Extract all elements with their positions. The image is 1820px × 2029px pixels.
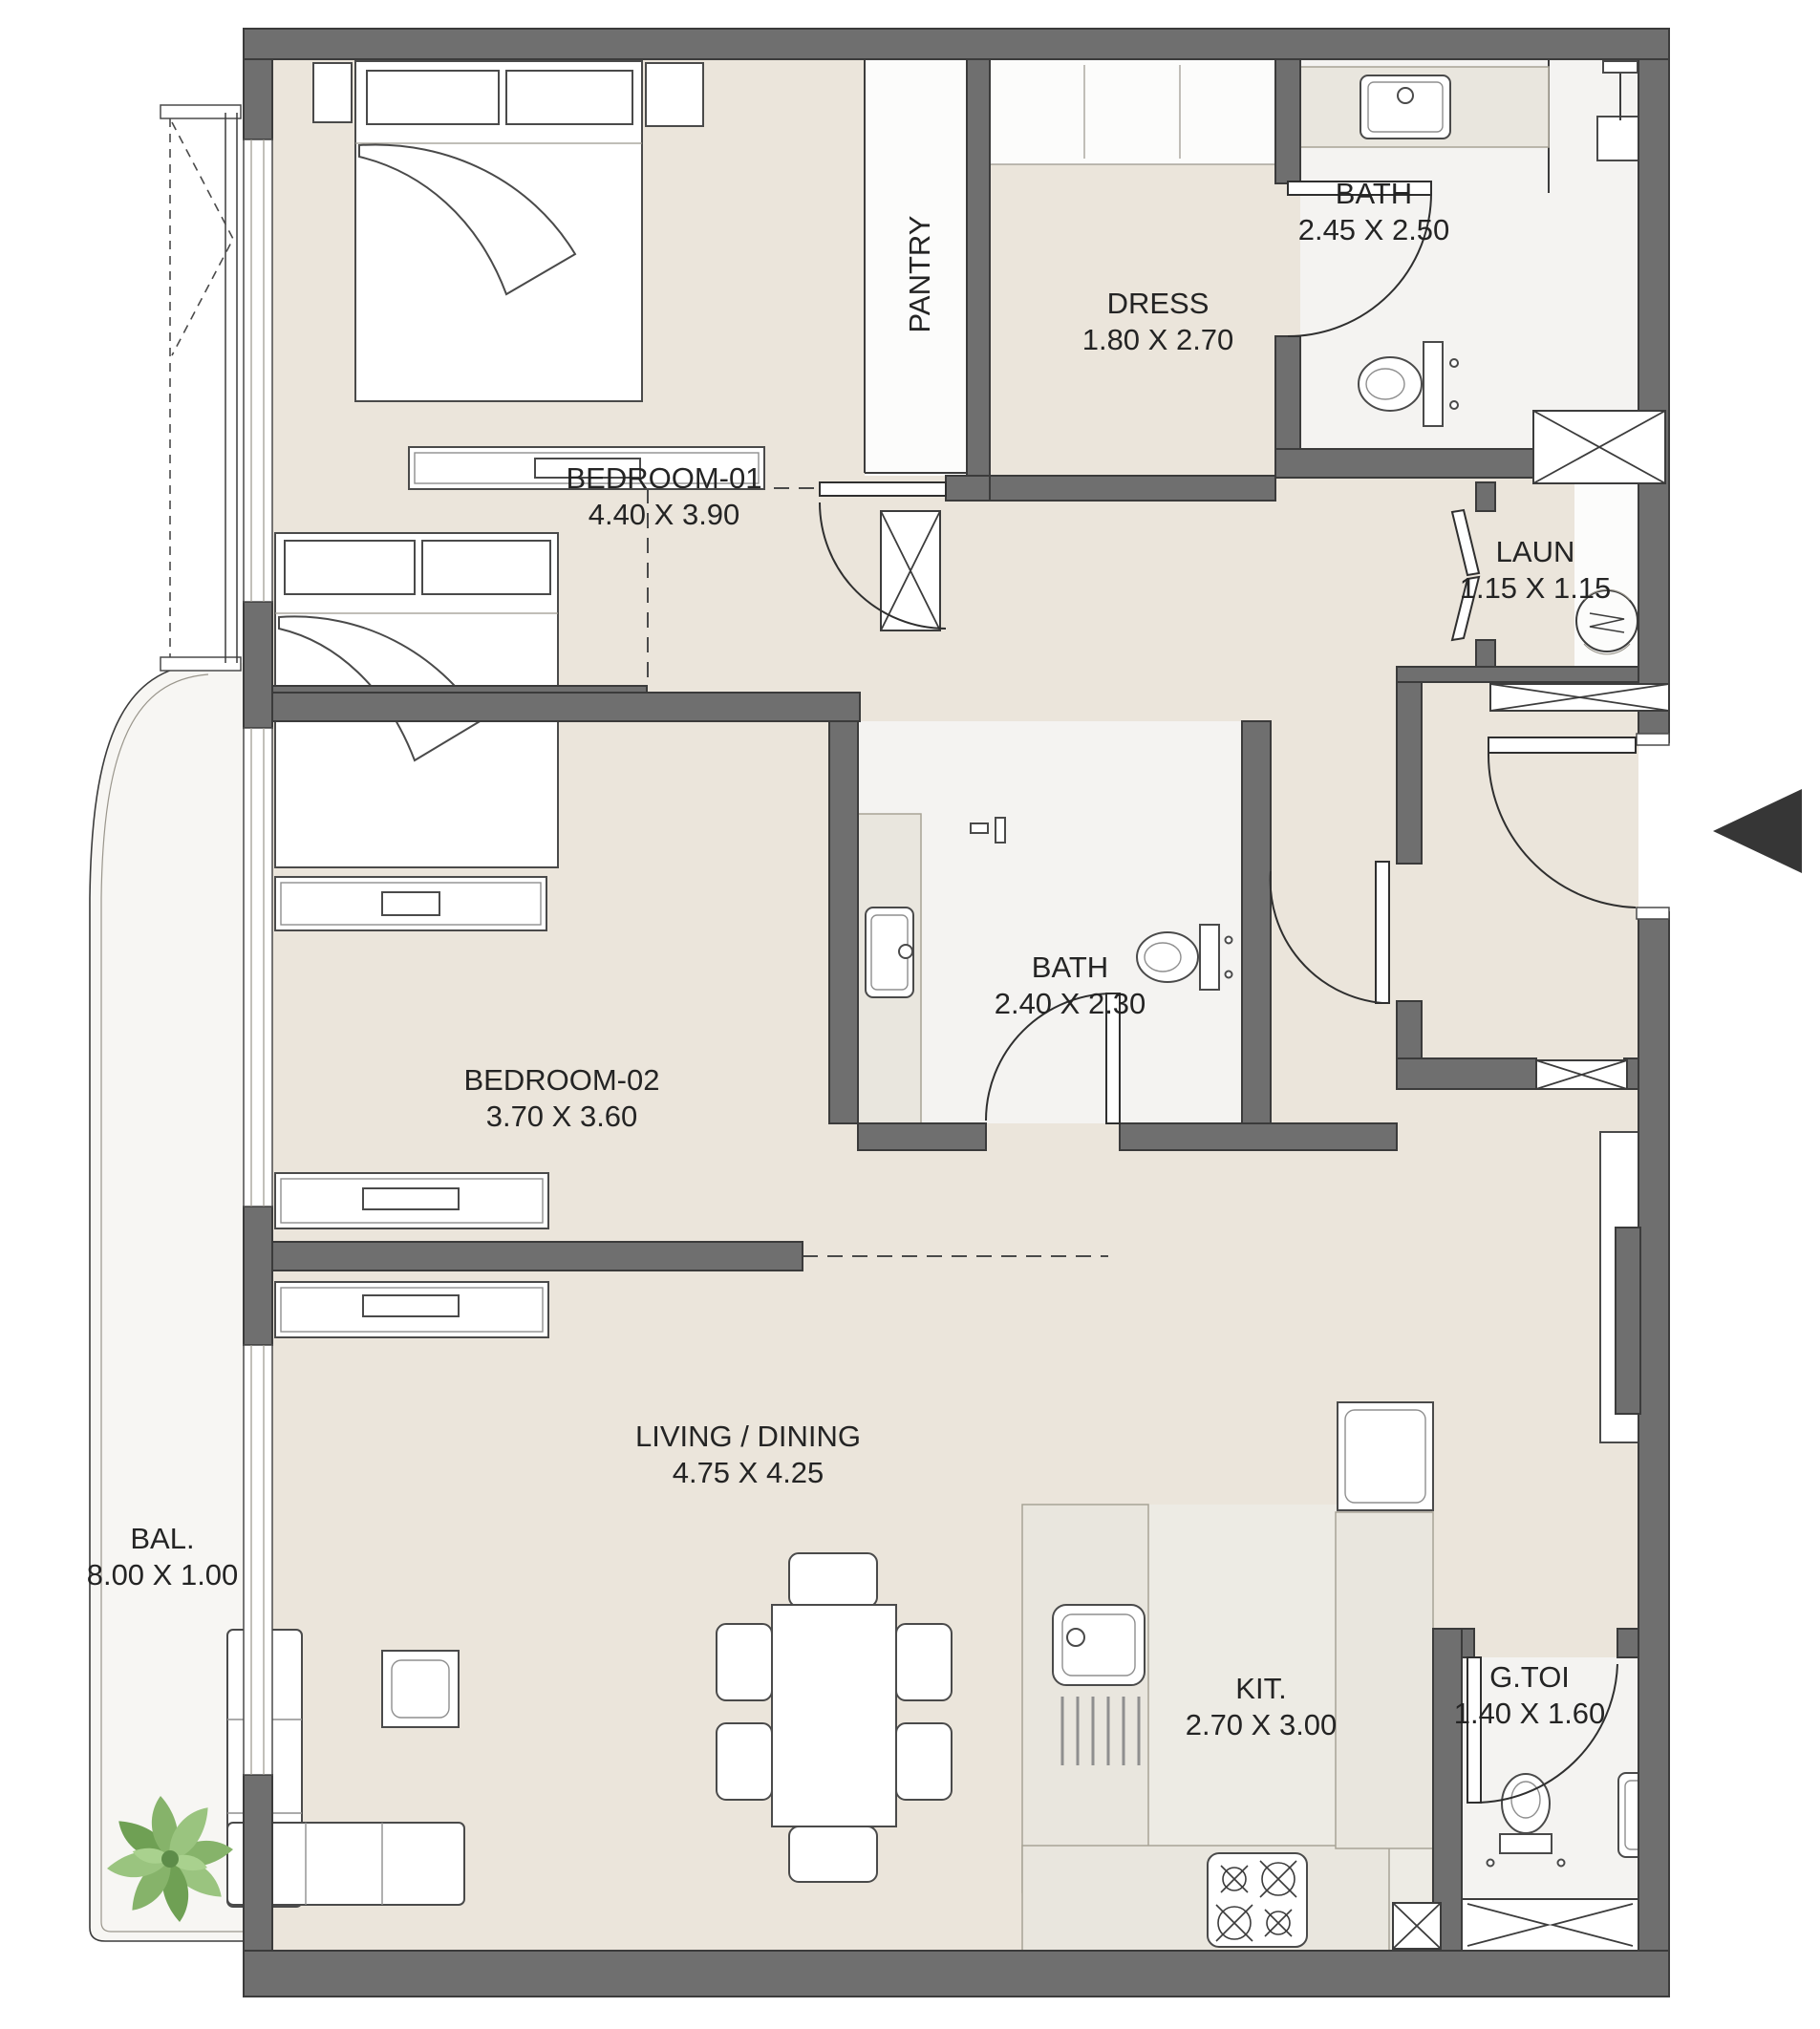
- nightstand: [313, 63, 352, 122]
- room-name: LIVING / DINING: [635, 1420, 861, 1453]
- toilet-tank: [1500, 1834, 1552, 1853]
- room-name: DRESS: [1107, 287, 1210, 320]
- room-name: BEDROOM-02: [464, 1063, 660, 1097]
- room-label-laun: LAUN 1.15 X 1.15: [1460, 534, 1612, 607]
- room-dims: 2.70 X 3.00: [1186, 1707, 1338, 1743]
- kitchen-counter: [1022, 1846, 1389, 1951]
- room-name: BATH: [1032, 950, 1108, 984]
- door-leaf: [820, 482, 946, 496]
- room-dims: 8.00 X 1.00: [87, 1557, 239, 1593]
- pillow: [422, 541, 550, 594]
- bathroom-sink: [1360, 75, 1450, 139]
- side-table: [382, 1651, 459, 1727]
- room-label-living: LIVING / DINING 4.75 X 4.25: [635, 1419, 861, 1491]
- entry-arrow-icon: [1713, 789, 1802, 873]
- kitchen-counter-right: [1336, 1512, 1433, 1848]
- toilet-bowl: [1137, 932, 1198, 982]
- bay-window: [161, 105, 241, 671]
- tv: [363, 1188, 459, 1209]
- room-label-bath2: BATH 2.40 X 2.30: [995, 950, 1146, 1022]
- room-label-kitchen: KIT. 2.70 X 3.00: [1186, 1671, 1338, 1743]
- pillow: [367, 71, 499, 124]
- room-label-balcony: BAL. 8.00 X 1.00: [87, 1521, 239, 1593]
- dining-chair: [896, 1624, 952, 1700]
- room-name: BATH: [1336, 177, 1412, 210]
- room-name: LAUN: [1496, 535, 1575, 568]
- room-name: KIT.: [1235, 1672, 1286, 1705]
- room-label-gtoi: G.TOI 1.40 X 1.60: [1454, 1659, 1606, 1732]
- room-name: PANTRY: [903, 216, 936, 333]
- room-dims: 2.40 X 2.30: [995, 986, 1146, 1022]
- window: [244, 139, 272, 602]
- dining-chair: [789, 1553, 877, 1607]
- balcony-area: [90, 663, 245, 1941]
- room-label-bedroom1: BEDROOM-01 4.40 X 3.90: [567, 460, 762, 533]
- pillow: [506, 71, 632, 124]
- dining-chair: [717, 1624, 772, 1700]
- room-label-bath1: BATH 2.45 X 2.50: [1298, 176, 1450, 248]
- room-name: G.TOI: [1489, 1660, 1570, 1694]
- room-dims: 1.15 X 1.15: [1460, 570, 1612, 607]
- nightstand: [646, 63, 703, 126]
- fridge: [1338, 1402, 1433, 1510]
- pillow: [285, 541, 415, 594]
- toilet-bowl: [1359, 357, 1422, 411]
- room-label-bedroom2: BEDROOM-02 3.70 X 3.60: [464, 1062, 660, 1135]
- room-name: BEDROOM-01: [567, 461, 762, 495]
- room-dims: 4.75 X 4.25: [635, 1455, 861, 1491]
- shower-fitting: [971, 823, 988, 833]
- room-dims: 1.80 X 2.70: [1082, 322, 1234, 358]
- dining-chair: [789, 1826, 877, 1882]
- shower-head: [1603, 61, 1638, 73]
- room-dims: 3.70 X 3.60: [464, 1099, 660, 1135]
- room-name: BAL.: [130, 1522, 194, 1555]
- faucet: [1067, 1629, 1084, 1646]
- faucet: [899, 945, 912, 958]
- dining-chair: [717, 1723, 772, 1800]
- window: [244, 1345, 272, 1775]
- entry-door-leaf: [1488, 737, 1636, 753]
- room-dims: 2.45 X 2.50: [1298, 212, 1450, 248]
- door-leaf: [1376, 862, 1389, 1003]
- faucet: [1398, 88, 1413, 103]
- tv: [363, 1295, 459, 1316]
- kitchen-island: [1022, 1505, 1148, 1892]
- toilet-bowl: [1502, 1774, 1550, 1833]
- floor-plan: BEDROOM-01 4.40 X 3.90 PANTRY DRESS 1.80…: [0, 0, 1820, 2029]
- shower-fitting: [996, 818, 1005, 843]
- toilet-tank: [1424, 342, 1443, 426]
- window: [244, 728, 272, 1207]
- shower-tray: [1597, 117, 1641, 160]
- room-label-dress: DRESS 1.80 X 2.70: [1082, 286, 1234, 358]
- dining-chair: [896, 1723, 952, 1800]
- dining-table: [772, 1605, 896, 1826]
- kitchen-sink: [1053, 1605, 1145, 1685]
- room-dims: 4.40 X 3.90: [567, 497, 762, 533]
- room-dims: 1.40 X 1.60: [1454, 1696, 1606, 1732]
- windows: [244, 139, 272, 1775]
- toilet-tank: [1200, 925, 1219, 990]
- room-label-pantry: PANTRY: [902, 216, 938, 333]
